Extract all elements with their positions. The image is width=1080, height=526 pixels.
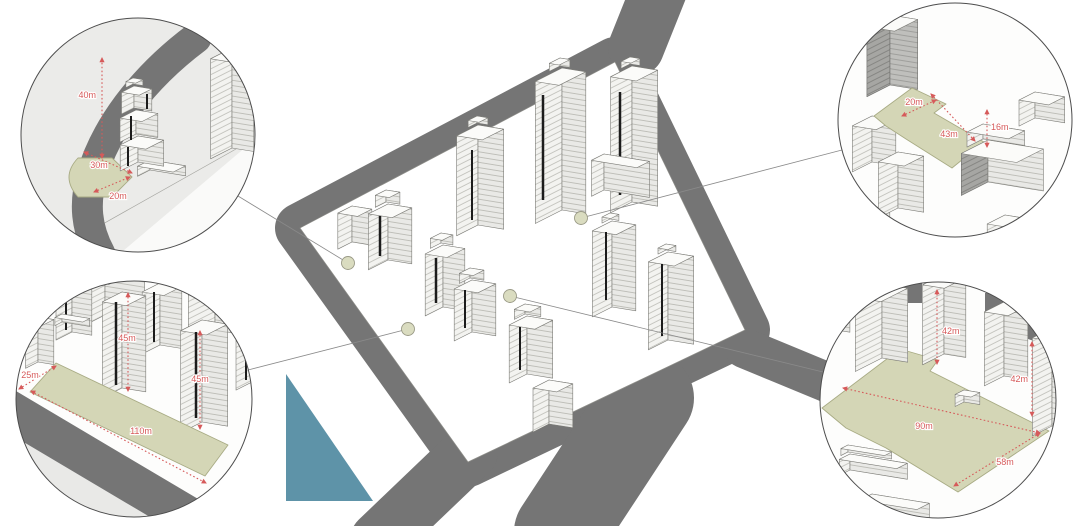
dim-label: 16m: [991, 122, 1009, 132]
building: [26, 317, 54, 368]
dim-label: 90m: [915, 421, 933, 431]
building: [878, 152, 923, 218]
building: [533, 380, 573, 432]
site-plan: [238, 0, 842, 526]
dim-label: 45m: [118, 333, 136, 343]
road-stub-north: [636, 0, 660, 48]
callout-bottom-right: 42m 42m 90m 58m: [818, 250, 1077, 521]
building: [592, 154, 650, 197]
road-stub-southwest: [378, 452, 470, 526]
building: [592, 213, 635, 317]
callout-top-left: 40m 30m 20m: [21, 18, 262, 262]
building: [855, 284, 907, 372]
dim-label: 25m: [21, 370, 39, 380]
callout-bottom-left: 25m 45m 45m 110m: [2, 260, 272, 526]
dim-label: 45m: [191, 374, 209, 384]
callout-top-right: 20m 43m 16m: [838, 3, 1080, 311]
dim-label: 110m: [130, 426, 152, 436]
building: [142, 283, 182, 354]
water-body: [286, 374, 373, 501]
massing-diagram: 40m 30m 20m: [0, 0, 1080, 526]
dim-label: 30m: [90, 160, 108, 170]
dim-label: 58m: [996, 457, 1014, 467]
site-marker: [504, 290, 517, 303]
building: [338, 206, 372, 249]
building: [535, 58, 586, 224]
building: [211, 48, 254, 159]
diagram-page: 40m 30m 20m: [0, 0, 1080, 526]
dim-label: 20m: [905, 97, 923, 107]
dim-label: 42m: [1010, 374, 1028, 384]
building: [923, 264, 966, 365]
building: [818, 250, 850, 339]
dim-label: 42m: [942, 326, 960, 336]
building: [457, 116, 504, 236]
site-marker: [575, 212, 588, 225]
site-marker: [402, 323, 415, 336]
site-marker: [342, 257, 355, 270]
building: [867, 15, 918, 97]
building: [648, 244, 693, 350]
dim-label: 20m: [109, 191, 127, 201]
dim-label: 43m: [940, 129, 958, 139]
dim-label: 40m: [78, 90, 96, 100]
building: [102, 292, 145, 398]
